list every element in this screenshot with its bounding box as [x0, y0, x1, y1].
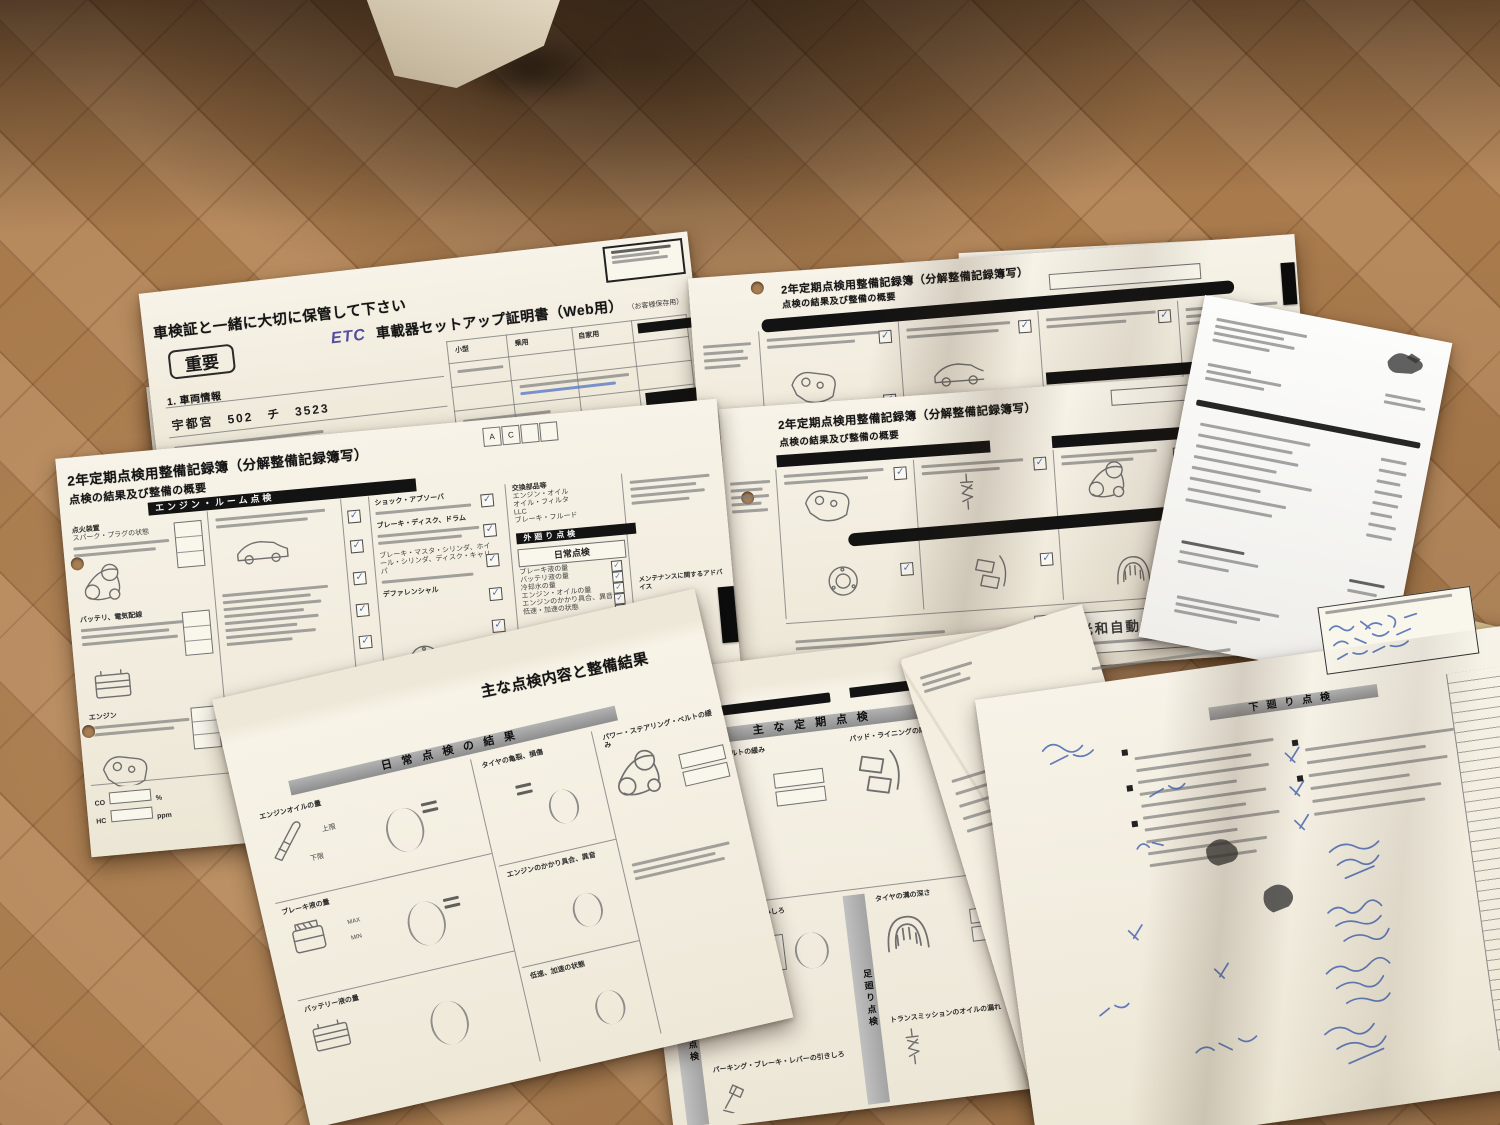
- engine-sketch: [98, 743, 157, 788]
- result-cells: [173, 520, 205, 568]
- doc-subtitle: （お客様保存用）: [627, 298, 683, 311]
- text-lines: [783, 463, 894, 489]
- item-label: エンジンのかかり具合、異音: [506, 848, 613, 880]
- index-tab: [1280, 262, 1297, 305]
- bullet: [1292, 739, 1299, 746]
- parts-box: 交換部品等 エンジン・オイル オイル・フィルタ LLC ブレーキ・フルード: [512, 476, 621, 525]
- form-number-box: [602, 238, 686, 283]
- item-label: パーキング・ブレーキ・レバーの引きしろ: [712, 1050, 858, 1076]
- field-joyo: 乗用: [514, 339, 529, 349]
- upper-label: 上限: [321, 824, 336, 835]
- grade-cell: [520, 423, 540, 444]
- company-logo: [1380, 344, 1430, 380]
- bullet: [1131, 821, 1138, 828]
- photo-of-documents-on-floor: 2年定期点検用整備記録簿（特定整備記録簿写） A C C 点検の結果及び整備の概…: [0, 0, 1500, 1125]
- text-lines: [457, 354, 568, 377]
- header-lines: [1212, 314, 1326, 366]
- field-jikayo: 自家用: [578, 331, 600, 341]
- item-lines: [1184, 415, 1350, 538]
- handwritten-record: 下廻り点検: [975, 625, 1500, 1125]
- min-label: MIN: [350, 932, 363, 942]
- item-label: バッテリー液の量: [303, 960, 509, 1015]
- doc-title: 2年定期点検用整備記録簿（分解整備記録簿写）: [780, 264, 1029, 298]
- item-label: ブレーキ・マスタ・シリンダ、ホイール・シリンダ、ディスク・キャリパ: [379, 542, 499, 577]
- doc-title: 2年定期点検用整備記録簿（分解整備記録簿写）: [778, 399, 1037, 433]
- bullet: [1126, 785, 1133, 792]
- distributor-sketch: [79, 560, 135, 607]
- footer-lines: [1173, 591, 1296, 638]
- address-lines: [1204, 359, 1297, 401]
- dipstick-sketch: [262, 814, 326, 877]
- text-lines: [215, 504, 334, 533]
- drum-sketch: [822, 559, 873, 606]
- pads-sketch: [851, 742, 922, 809]
- booklet-title: 主な点検内容と整備結果: [479, 647, 650, 702]
- cell-brake-fluid: ブレーキ液の量 MAX MIN: [281, 863, 501, 976]
- item-label: 低速、加速の状態: [530, 949, 637, 981]
- driveline-sketch: [891, 1023, 951, 1070]
- cell-battery-fluid: バッテリー液の量: [303, 960, 522, 1069]
- grade-cell: A: [482, 426, 502, 447]
- lever-sketch: [714, 1073, 768, 1115]
- grade-cell: [539, 421, 559, 442]
- hc-unit: ppm: [157, 812, 172, 820]
- result-cells: [182, 610, 214, 656]
- price-lines: [1364, 450, 1412, 550]
- max-label: MAX: [347, 916, 361, 927]
- bullet: [1297, 775, 1304, 782]
- battery-sketch: [307, 1008, 373, 1064]
- total-lines: [1176, 533, 1271, 586]
- cell-ps-belt: パワー・ステアリング・ベルトの緩み: [602, 709, 736, 818]
- grade-cell: C: [501, 425, 521, 446]
- text-lines: [906, 316, 1027, 343]
- car-sketch: [233, 530, 293, 577]
- handwritten-notes: [975, 625, 1500, 1125]
- text-lines: [222, 580, 345, 650]
- co-label: CO: [94, 800, 105, 808]
- text-lines: [1046, 306, 1167, 333]
- cell-engine-start: エンジンのかかり具合、異音: [506, 848, 613, 880]
- important-badge: 重要: [167, 344, 236, 380]
- tire-sketch: [876, 903, 942, 964]
- field-kogata: 小型: [455, 346, 470, 356]
- hc-label: HC: [96, 818, 107, 826]
- advice-label: メンテナンスに関するアドバイス: [638, 569, 725, 593]
- bullet: [1121, 749, 1128, 756]
- etc-logo: ETC: [330, 326, 367, 347]
- co-unit: %: [156, 795, 163, 803]
- text-lines: [703, 338, 757, 374]
- pads-sketch: [970, 551, 1021, 598]
- battery-sketch: [90, 662, 149, 707]
- belt-sketch: [607, 742, 682, 813]
- amount-lines: [1383, 389, 1430, 415]
- cell-speed: 低速、加速の状態: [530, 949, 637, 981]
- text-lines: [1061, 444, 1172, 470]
- title-bar-segment: [849, 681, 910, 698]
- cell-parking-brake: パーキング・ブレーキ・レバーの引きしろ: [712, 1049, 867, 1120]
- text-lines: [730, 476, 775, 518]
- obd-lines: [629, 469, 716, 508]
- reservoir-sketch: [284, 909, 352, 971]
- text-lines: [631, 835, 744, 884]
- punch-hole: [750, 281, 764, 295]
- text-lines: [921, 454, 1032, 480]
